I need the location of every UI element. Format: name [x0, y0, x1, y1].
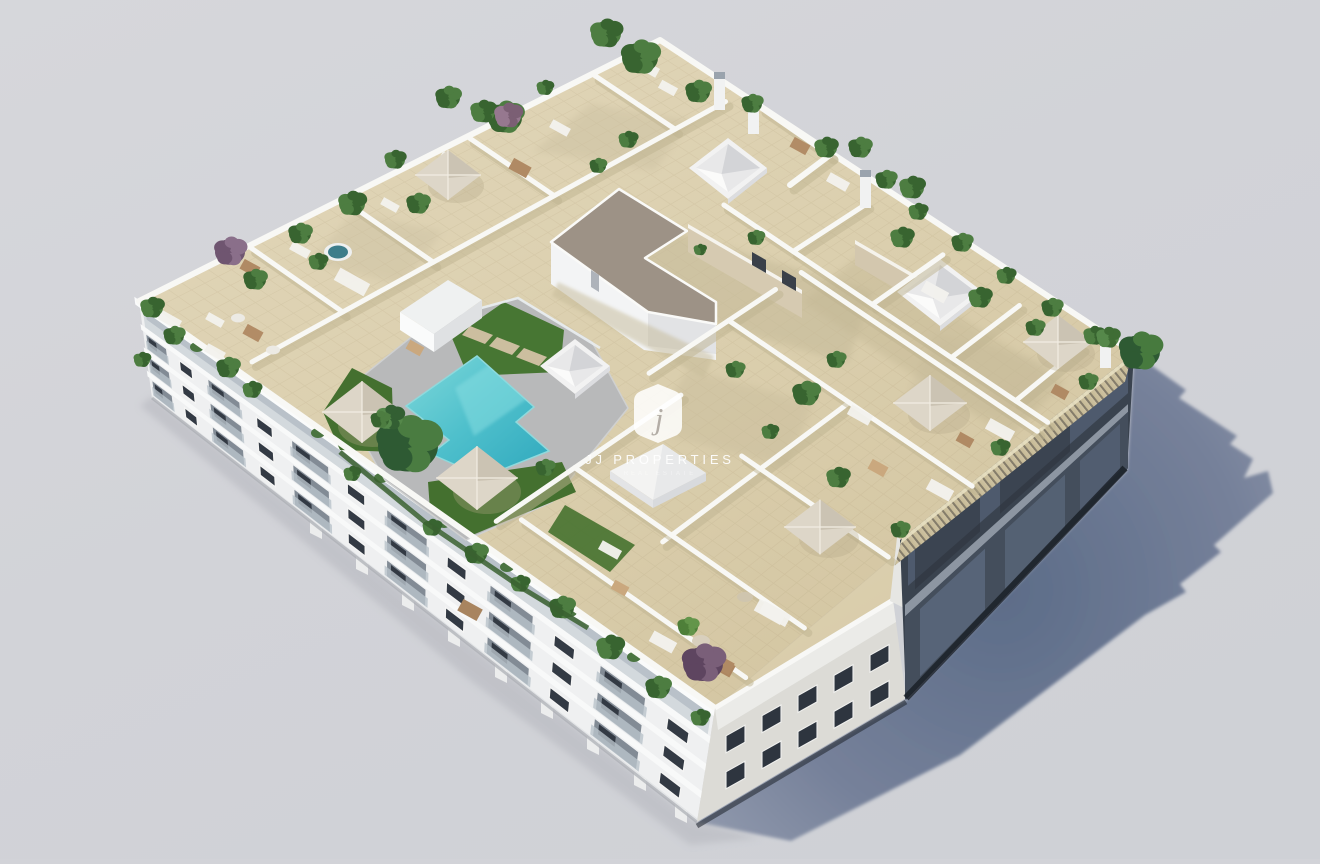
svg-text:REAL ESTATE: REAL ESTATE [624, 471, 697, 477]
svg-text:JJ PROPERTIES: JJ PROPERTIES [585, 452, 735, 467]
